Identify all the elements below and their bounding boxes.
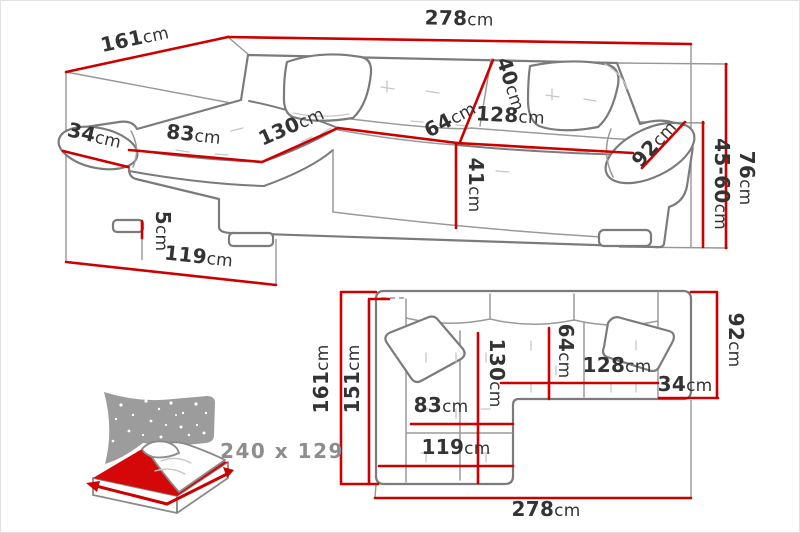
dim-label-total-height: 76cm xyxy=(735,151,759,206)
plan-dim-label-chaise-outer-length: 119cm xyxy=(422,435,491,459)
sleeping-area-label: 240 x 129 xyxy=(220,439,344,463)
sofa-dimensions-diagram: 161cm 278cm 34cm 83cm 130cm 64cm 40cm 12… xyxy=(1,1,800,533)
dim-label-seat-height: 41cm xyxy=(464,158,488,213)
plan-dim-label-width-total: 278cm xyxy=(512,497,581,521)
diagram-page: 161cm 278cm 34cm 83cm 130cm 64cm 40cm 12… xyxy=(0,0,800,533)
plan-dim-label-chaise-length: 130cm xyxy=(485,339,509,408)
plan-dim-label-seat-depth: 64cm xyxy=(554,324,578,379)
plan-dim-label-depth-total: 161cm xyxy=(309,345,333,414)
plan-dim-label-side-depth: 92cm xyxy=(724,313,748,368)
pillow-left xyxy=(284,54,371,120)
plan-dim-label-depth-inner: 151cm xyxy=(340,345,364,414)
plan-dim-label-chaise-seat-width: 83cm xyxy=(414,393,469,417)
dim-label-armrest-height: 45-60cm xyxy=(710,138,734,230)
plan-dim-label-armrest-width: 34cm xyxy=(658,372,713,396)
plan-dim-label-seat-width: 128cm xyxy=(583,353,652,377)
